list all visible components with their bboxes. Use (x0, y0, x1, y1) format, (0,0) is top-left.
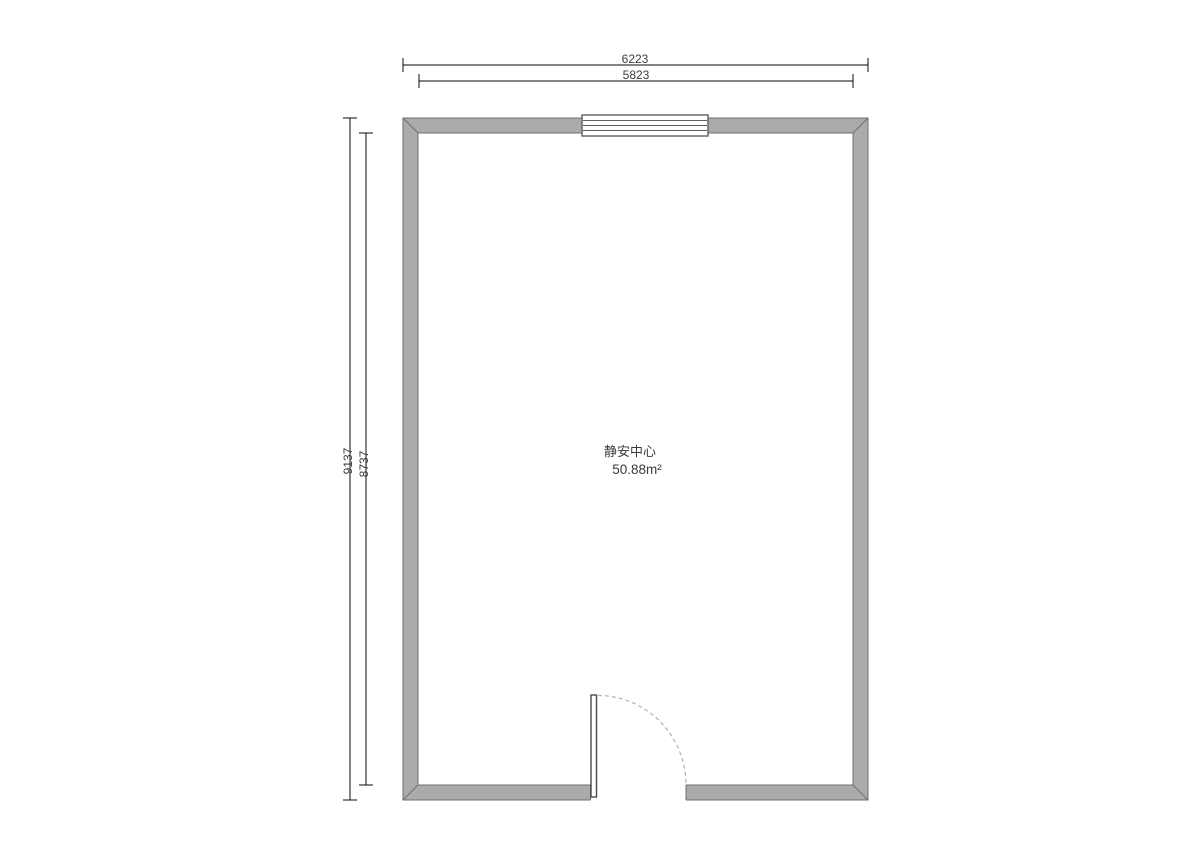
dimension-label-top-outer: 6223 (622, 52, 649, 66)
room-area-label: 50.88m² (612, 462, 662, 477)
door-swing-arc (598, 696, 686, 786)
floor-plan-page: 6223 5823 9137 8737 静安中心 50.88m² (0, 0, 1191, 842)
wall-ring (403, 118, 868, 800)
door-leaf (591, 695, 597, 797)
dimension-top-inner: 5823 (419, 68, 853, 88)
dimension-label-top-inner: 5823 (623, 68, 650, 82)
floor-plan-drawing: 6223 5823 9137 8737 静安中心 50.88m² (0, 0, 1191, 842)
door-opening (591, 784, 687, 802)
dimension-label-left-outer: 9137 (341, 447, 355, 474)
dimension-label-left-inner: 8737 (357, 450, 371, 477)
room-name-label: 静安中心 (604, 444, 656, 459)
dimension-left-outer: 9137 (341, 118, 357, 800)
dimension-left-inner: 8737 (357, 133, 373, 785)
